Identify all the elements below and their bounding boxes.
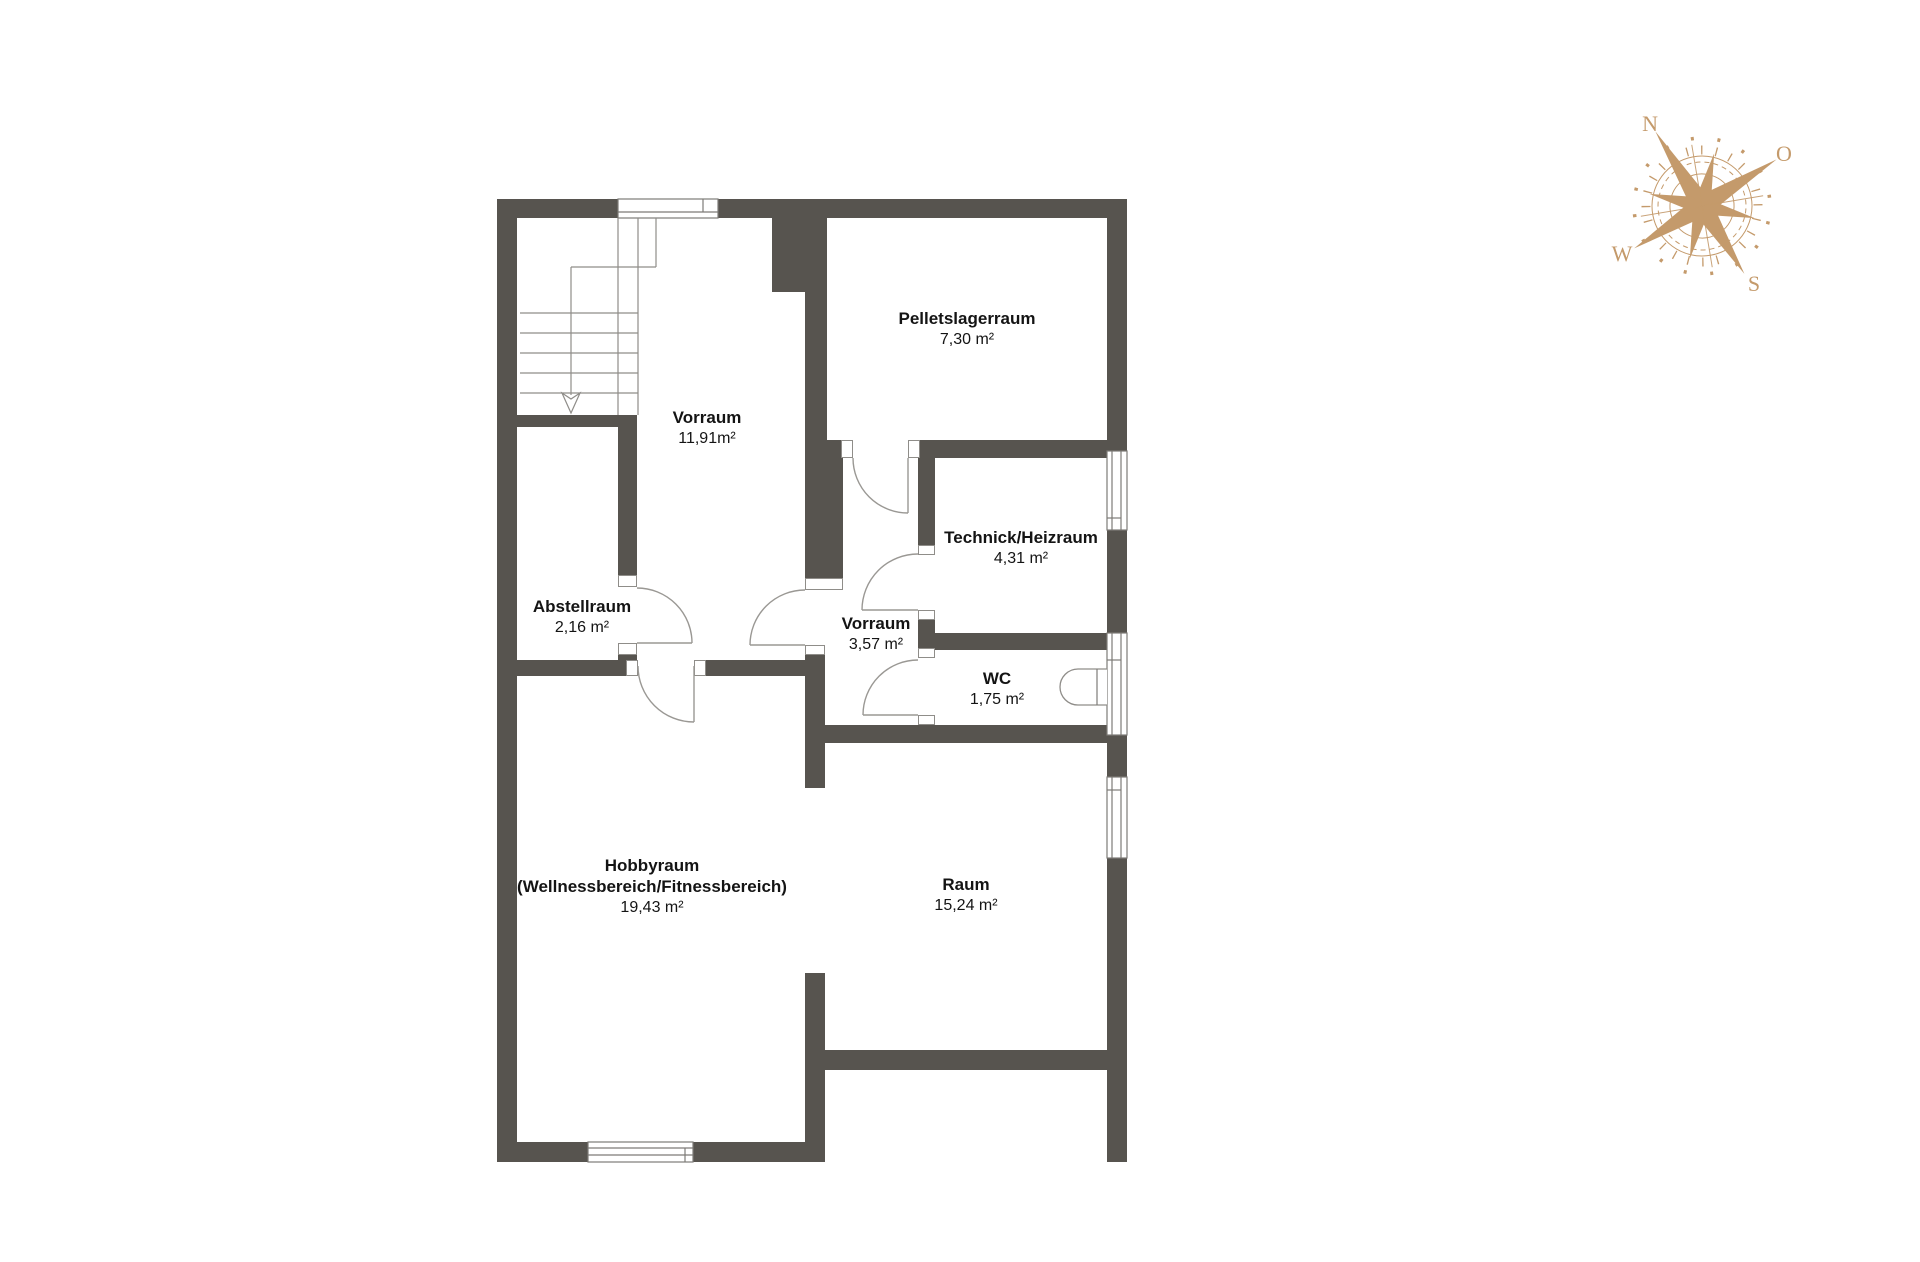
door-jamb xyxy=(694,660,706,676)
door-jamb xyxy=(918,648,935,658)
room-area: 4,31 m² xyxy=(944,548,1098,569)
label-hobbyraum: Hobbyraum (Wellnessbereich/Fitnessbereic… xyxy=(517,855,787,918)
door-vorraum-to-technik xyxy=(862,554,918,610)
room-area: 3,57 m² xyxy=(842,634,911,655)
compass-rose: N O S W xyxy=(1587,85,1820,318)
door-jamb xyxy=(618,643,637,655)
room-area: 1,75 m² xyxy=(970,689,1024,710)
wall-bottom-left xyxy=(497,1142,588,1162)
label-pelletslagerraum: Pelletslagerraum 7,30 m² xyxy=(898,308,1035,350)
room-area: 2,16 m² xyxy=(533,617,631,638)
room-name: Abstellraum xyxy=(533,596,631,617)
wall-abstellraum-right xyxy=(618,427,637,587)
room-name: Hobbyraum xyxy=(517,855,787,876)
window-bottom xyxy=(588,1142,693,1162)
plan-symbol-overlay: N O S W xyxy=(0,0,1920,1262)
label-abstellraum: Abstellraum 2,16 m² xyxy=(533,596,631,638)
wall-left xyxy=(497,199,517,1162)
compass-letter-s: S xyxy=(1748,271,1760,296)
wall-stair-bottom xyxy=(517,415,637,427)
room-name: Vorraum xyxy=(673,407,742,428)
window-right-wc xyxy=(1107,633,1127,735)
room-area: 7,30 m² xyxy=(898,329,1035,350)
door-jamb xyxy=(805,645,825,655)
label-vorraum-main: Vorraum 11,91m² xyxy=(673,407,742,449)
wall-raum-bottom xyxy=(805,1050,1107,1070)
staircase xyxy=(520,218,656,415)
door-pellets-to-vorraum xyxy=(853,458,908,513)
wall-hobby-raum-upper xyxy=(805,676,825,788)
window-top xyxy=(618,199,718,218)
room-name: Raum xyxy=(934,874,997,895)
wall-hobby-top-right xyxy=(694,660,805,676)
door-hobbyraum xyxy=(638,666,694,722)
wall-vorraum-pellets xyxy=(805,292,827,440)
label-vorraum-small: Vorraum 3,57 m² xyxy=(842,613,911,655)
room-name: WC xyxy=(970,668,1024,689)
wall-right-seg4 xyxy=(1107,858,1127,1162)
door-jamb xyxy=(841,440,853,458)
door-jamb xyxy=(626,660,638,676)
room-area: 11,91m² xyxy=(673,428,742,449)
door-vorraum-to-wc xyxy=(863,660,918,715)
label-raum: Raum 15,24 m² xyxy=(934,874,997,916)
wall-right-seg1 xyxy=(1107,199,1127,451)
wall-step-vertical xyxy=(805,1070,825,1162)
label-technik-heizraum: Technick/Heizraum 4,31 m² xyxy=(944,527,1098,569)
compass-letter-w: W xyxy=(1612,241,1633,266)
door-jamb xyxy=(918,610,935,620)
door-jamb xyxy=(918,715,935,725)
door-jamb xyxy=(918,545,935,555)
door-jamb xyxy=(618,575,637,587)
wall-wc-bottom xyxy=(825,725,1107,743)
compass-star xyxy=(1587,85,1820,318)
stair-direction-arrow xyxy=(562,393,580,413)
door-jamb xyxy=(908,440,920,458)
compass-letter-o: O xyxy=(1776,141,1792,166)
toilet-fixture xyxy=(1060,669,1107,705)
wall-hobby-top-left xyxy=(517,660,638,676)
door-vorraum-main-to-small xyxy=(750,590,805,645)
door-abstellraum xyxy=(637,588,692,643)
wall-vorraum-small-left xyxy=(805,440,843,578)
wall-technik-bottom xyxy=(935,633,1107,650)
room-area: 19,43 m² xyxy=(517,897,787,918)
wall-technik-left-1 xyxy=(918,458,935,555)
door-jamb xyxy=(805,578,843,590)
window-right-technik xyxy=(1107,451,1127,530)
room-subname: (Wellnessbereich/Fitnessbereich) xyxy=(517,876,787,897)
floorplan-canvas: N O S W Vorraum 11,91m² Pelletslagerraum… xyxy=(0,0,1920,1262)
wall-vorraum-pellets-stub xyxy=(772,218,827,292)
wall-top-right xyxy=(718,199,1127,218)
room-name: Vorraum xyxy=(842,613,911,634)
wall-hobby-raum-lower xyxy=(805,973,825,1070)
room-name: Technick/Heizraum xyxy=(944,527,1098,548)
window-right-raum xyxy=(1107,777,1127,858)
wall-right-seg2 xyxy=(1107,530,1127,633)
compass-letter-n: N xyxy=(1642,111,1658,136)
wall-right-seg3 xyxy=(1107,735,1127,777)
label-wc: WC 1,75 m² xyxy=(970,668,1024,710)
room-area: 15,24 m² xyxy=(934,895,997,916)
room-name: Pelletslagerraum xyxy=(898,308,1035,329)
wall-pellets-bottom-right xyxy=(908,440,1107,458)
